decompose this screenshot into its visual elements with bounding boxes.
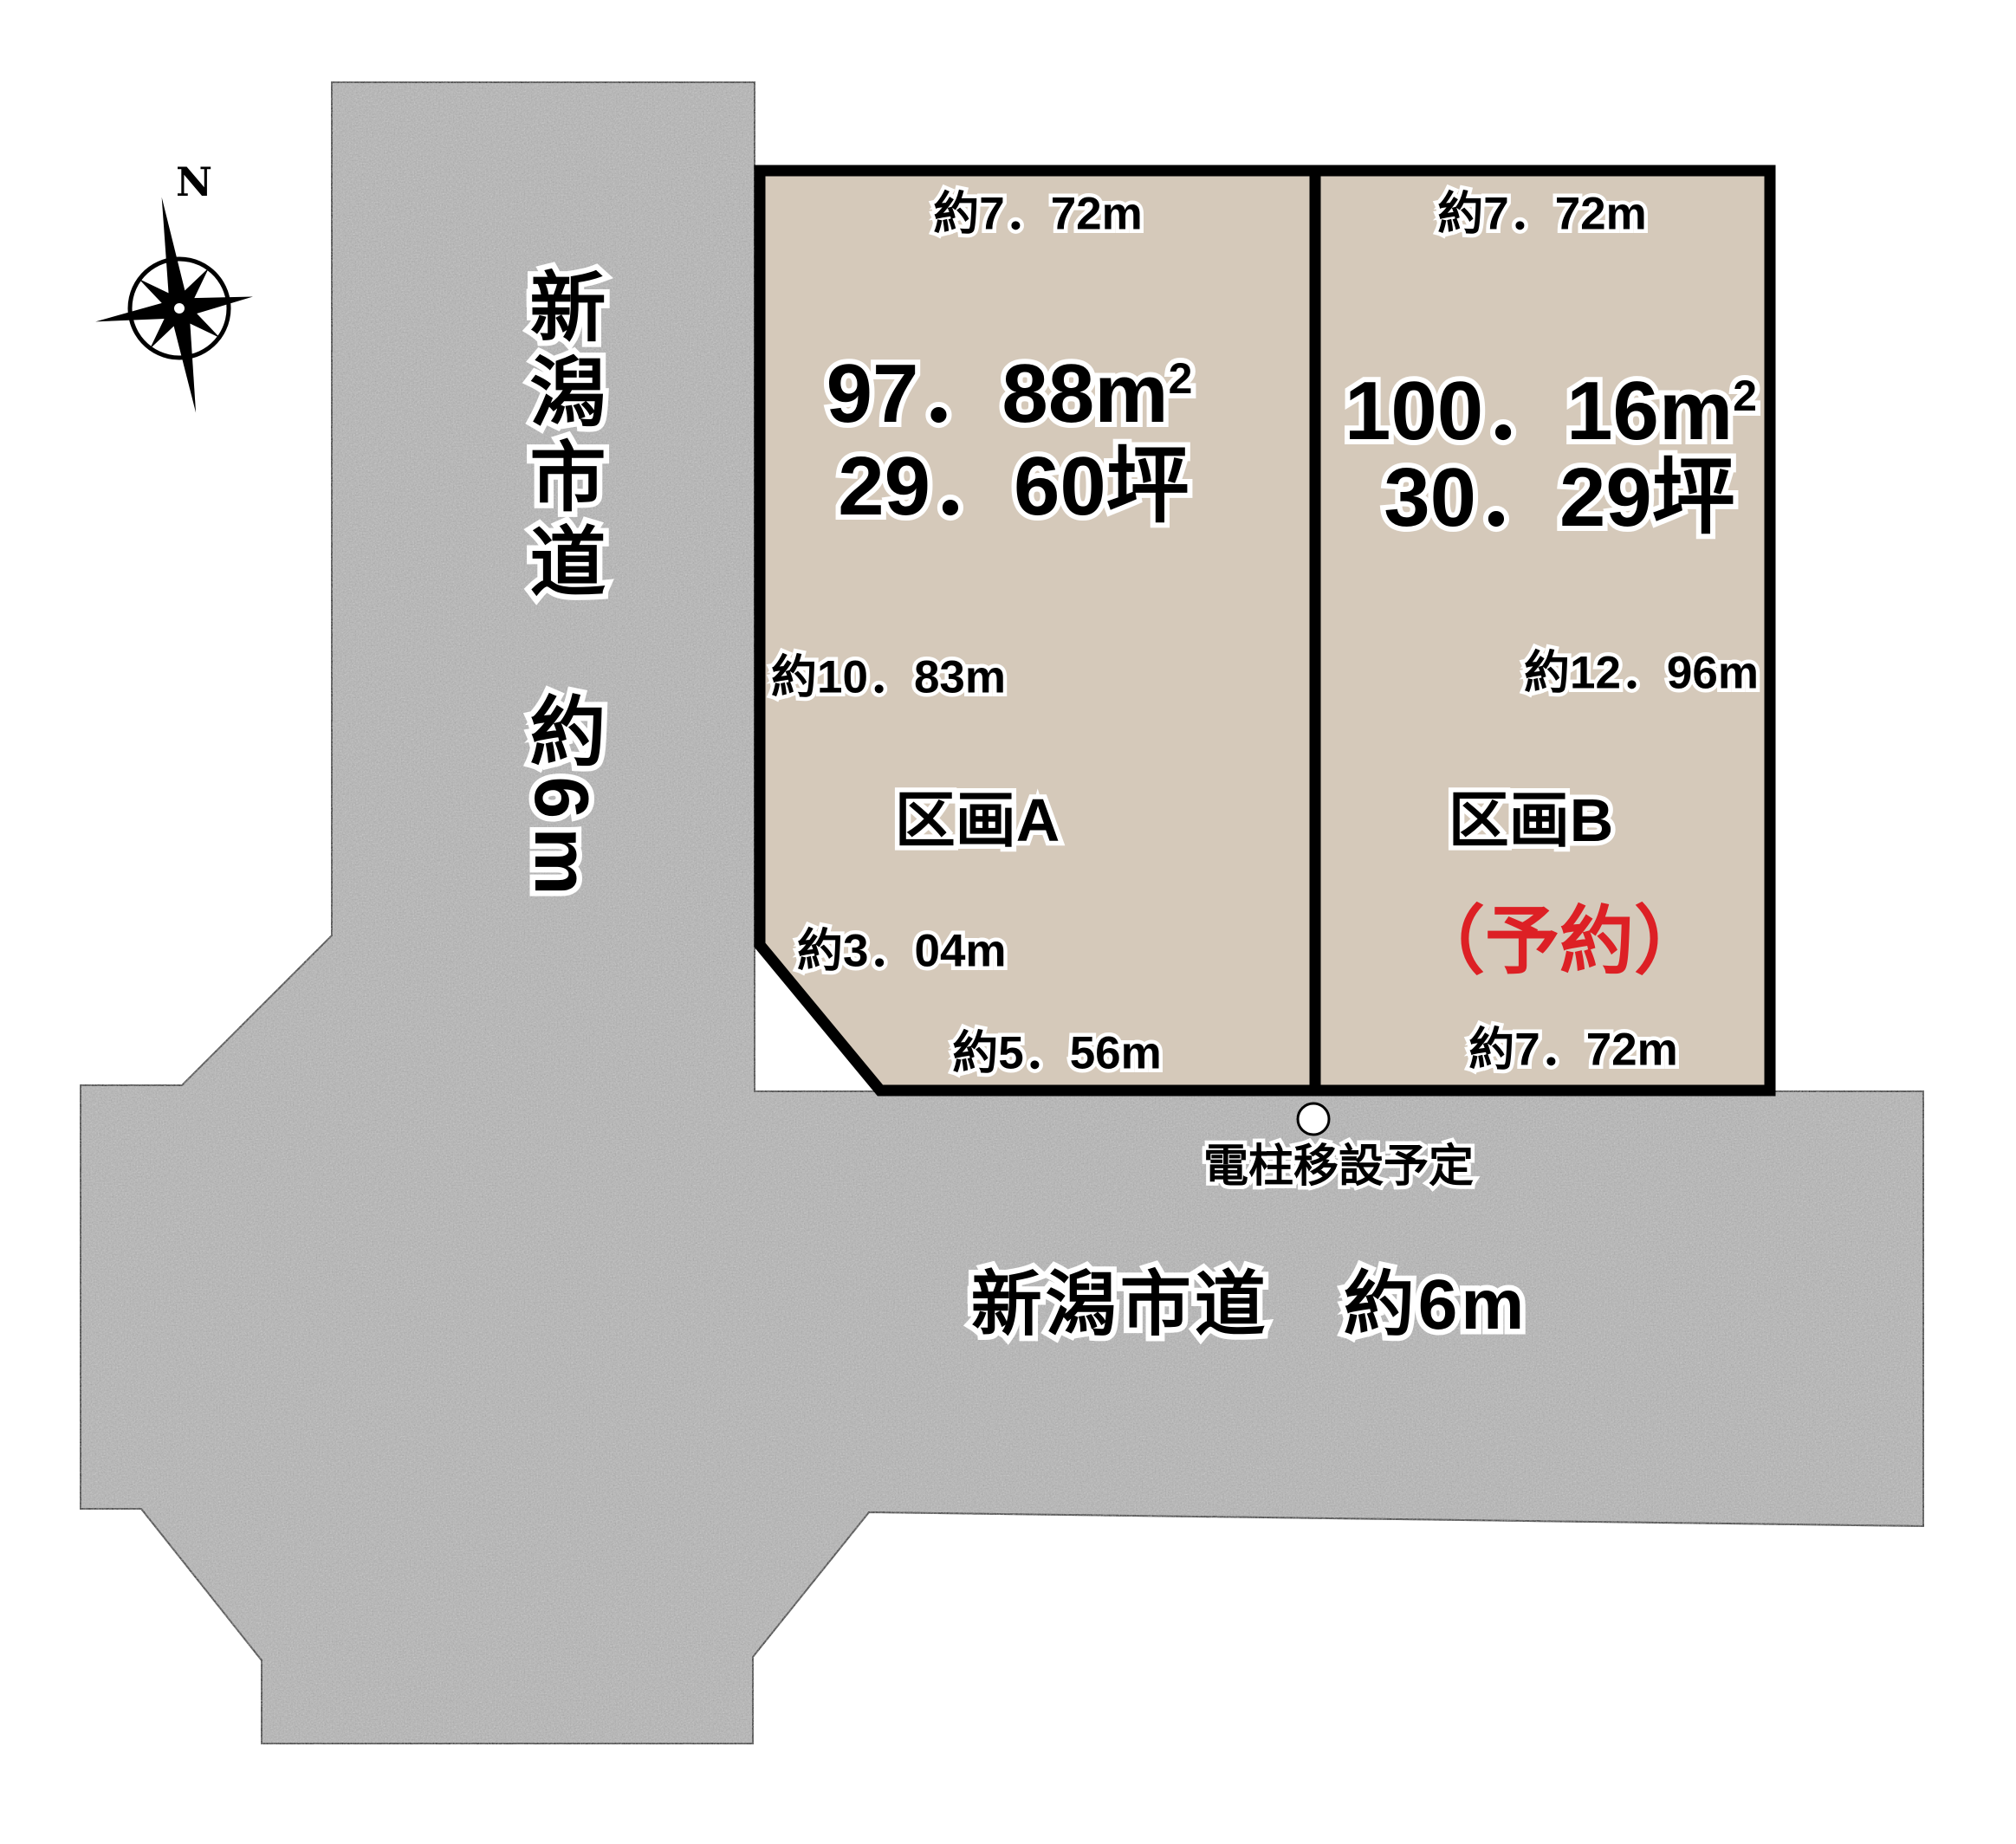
plot-b-area-m2: 100．16m2 100．16m2	[1345, 370, 1757, 453]
plot-b-dim-bottom: 約7．72m 約7．72m	[1468, 1027, 1678, 1073]
plot-a-dim-bottom: 約5．56m 約5．56m	[952, 1031, 1162, 1077]
plot-b-dim-top: 約7．72m 約7．72m	[1437, 191, 1647, 237]
site-plan-drawing	[0, 0, 2016, 1844]
plot-a-dim-corner: 約3．04m 約3．04m	[797, 928, 1007, 974]
bottom-road-label: 新潟市道 約6m 新潟市道 約6m	[971, 1270, 1528, 1341]
compass-rose-icon	[78, 185, 269, 426]
plot-b-area-tsubo: 30．29坪 30．29坪	[1384, 456, 1735, 540]
compass-north-label: N	[176, 162, 212, 202]
plot-a-dim-top: 約7．72m 約7．72m	[933, 191, 1143, 237]
plot-b-name: 区画B 区画B	[1449, 790, 1614, 851]
site-plan: N 新潟市道 約6m 新潟市道 約6m 新潟市道 約6m 新潟市道 約6m 電柱…	[0, 0, 2016, 1844]
plot-a-area-m2: 97．88m2 97．88m2	[826, 353, 1193, 436]
left-road-label: 新潟市道 約6m 新潟市道 約6m	[523, 267, 600, 903]
plot-a-dim-left: 約10．83m 約10．83m	[771, 655, 1006, 701]
plot-b-reserved-status: （予約）	[1410, 904, 1708, 979]
plot-b-dim-right: 約12．96m 約12．96m	[1524, 650, 1759, 696]
plot-a-area-tsubo: 29．60坪 29．60坪	[838, 445, 1190, 528]
plot-a-name: 区画A 区画A	[895, 790, 1060, 851]
pole-relocation-note: 電柱移設予定 電柱移設予定	[1203, 1144, 1474, 1189]
utility-pole-marker	[1298, 1103, 1329, 1135]
